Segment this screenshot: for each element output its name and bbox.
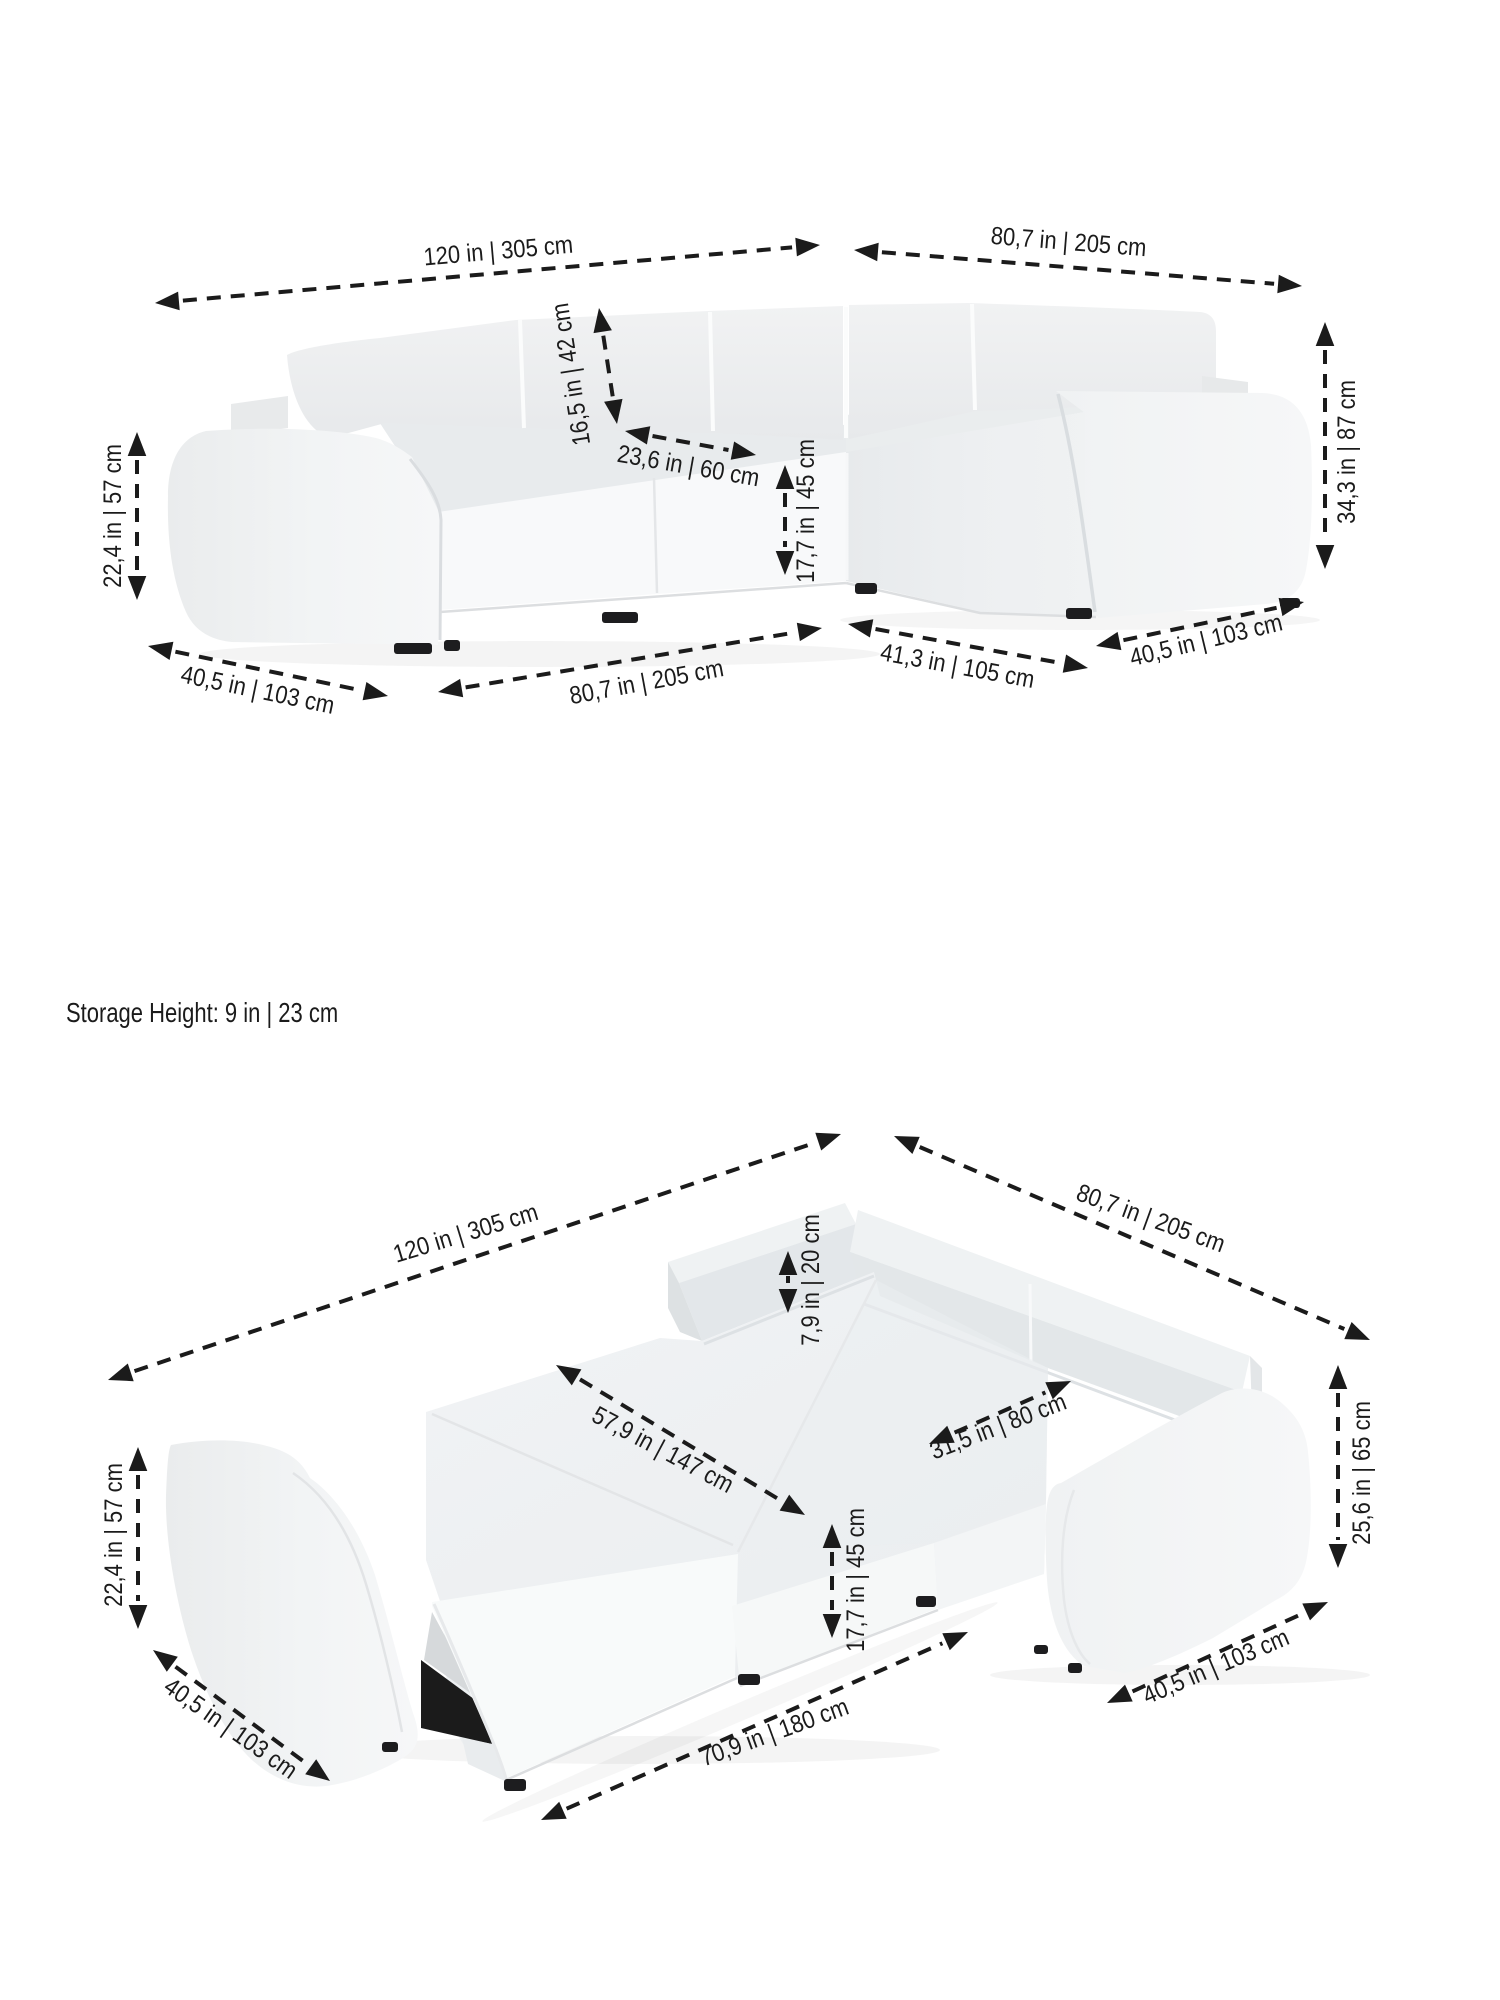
- svg-text:17,7 in | 45 cm: 17,7 in | 45 cm: [842, 1508, 870, 1652]
- svg-text:22,4 in | 57 cm: 22,4 in | 57 cm: [99, 444, 127, 588]
- svg-text:17,7 in | 45 cm: 17,7 in | 45 cm: [792, 439, 820, 583]
- svg-text:25,6 in | 65 cm: 25,6 in | 65 cm: [1348, 1401, 1376, 1545]
- svg-text:7,9 in | 20 cm: 7,9 in | 20 cm: [797, 1214, 825, 1346]
- svg-text:34,3 in | 87 cm: 34,3 in | 87 cm: [1333, 380, 1361, 524]
- svg-text:Storage Height: 9 in | 23 cm: Storage Height: 9 in | 23 cm: [66, 998, 338, 1029]
- svg-text:22,4 in | 57 cm: 22,4 in | 57 cm: [100, 1463, 128, 1607]
